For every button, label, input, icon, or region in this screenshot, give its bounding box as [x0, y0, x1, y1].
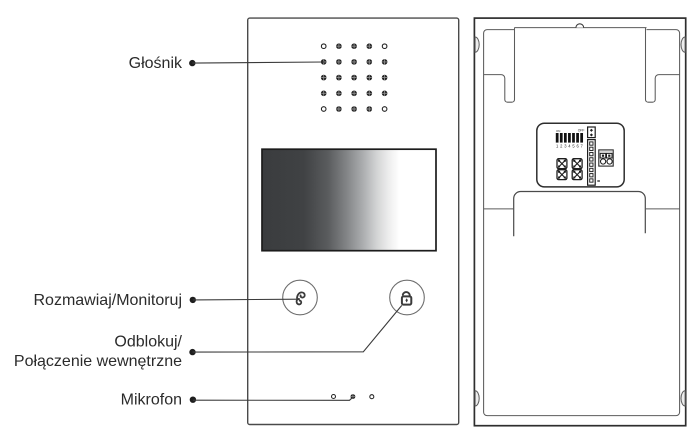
svg-text:Mikrofon: Mikrofon: [121, 391, 182, 408]
svg-text:Głośnik: Głośnik: [129, 55, 183, 72]
svg-text:OFF: OFF: [578, 129, 585, 133]
svg-text:Rozmawiaj/Monitoruj: Rozmawiaj/Monitoruj: [34, 292, 183, 309]
svg-text:ON: ON: [556, 129, 560, 133]
svg-text:Połączenie wewnętrzne: Połączenie wewnętrzne: [14, 353, 182, 370]
svg-text:Odblokuj/: Odblokuj/: [114, 334, 182, 351]
